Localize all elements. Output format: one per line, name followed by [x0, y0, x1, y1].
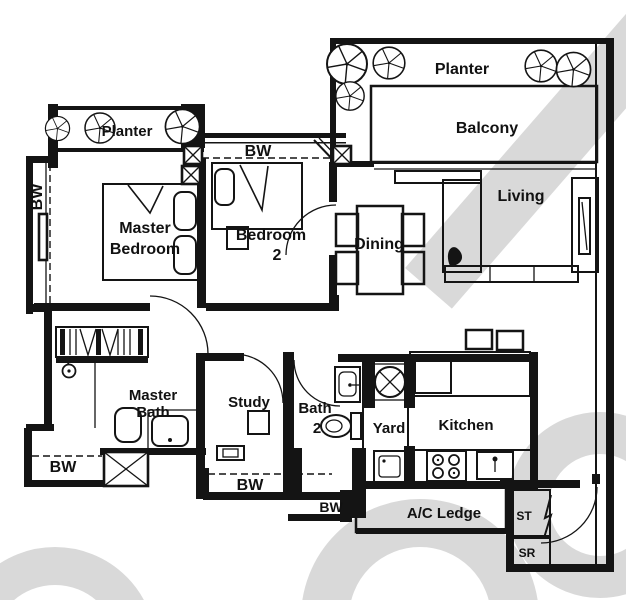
laundry-sink-icon — [374, 451, 405, 482]
label-master-bedroom-1: Master — [119, 220, 171, 237]
label-bw-study: BW — [237, 477, 265, 494]
tree-icon — [373, 47, 405, 79]
label-kitchen: Kitchen — [438, 417, 493, 434]
tree-icon — [525, 50, 557, 82]
tree-icon — [327, 44, 367, 84]
wall-cabinet-icon — [466, 330, 492, 349]
tree-icon — [336, 82, 364, 110]
closet-box-icon — [182, 166, 200, 184]
washing-machine-icon — [374, 364, 406, 400]
label-store: ST — [516, 509, 532, 523]
cabinet-icon — [217, 446, 244, 460]
tree-icon — [165, 109, 199, 143]
tree-icon — [45, 116, 69, 140]
label-planter-left: Planter — [102, 123, 153, 140]
column-box-icon — [184, 146, 202, 164]
label-ac-ledge: A/C Ledge — [407, 505, 481, 522]
tv-console-icon — [572, 178, 598, 272]
label-bw-top: BW — [245, 143, 273, 160]
tree-icon — [556, 52, 590, 86]
label-bedroom-2-1: Bedroom — [236, 227, 306, 244]
stove-icon — [427, 451, 466, 481]
label-bw-left: BW — [29, 183, 46, 211]
label-planter-top: Planter — [435, 61, 489, 78]
kitchen-sink-icon — [477, 452, 513, 479]
label-study: Study — [228, 394, 270, 411]
floor-plan: Planter Balcony Planter Master Bedroom B… — [0, 0, 626, 600]
wardrobe-icon — [56, 327, 148, 357]
label-balcony: Balcony — [456, 120, 518, 137]
ac-shaft-icon — [104, 452, 148, 486]
label-yard: Yard — [373, 420, 406, 437]
sink-icon — [335, 367, 360, 402]
label-bw-bottom-left: BW — [50, 459, 78, 476]
label-master-bedroom-2: Bedroom — [110, 241, 180, 258]
column-box-icon — [333, 146, 351, 164]
fridge-icon — [415, 361, 451, 393]
label-bw-bath-2: BW — [319, 499, 343, 515]
wall-cabinet-icon — [497, 331, 523, 350]
label-master-bath-1: Master — [129, 387, 178, 404]
label-bath-2-1: Bath — [298, 400, 331, 417]
master-bath-fixtures — [56, 296, 208, 450]
label-dining: Dining — [354, 236, 404, 253]
label-living: Living — [497, 188, 544, 205]
label-bedroom-2-2: 2 — [273, 247, 282, 264]
label-bath-2-2: 2 — [313, 420, 321, 437]
kitchen-fixtures — [408, 330, 532, 481]
desk-icon — [248, 411, 269, 434]
label-master-bath-2: Bath — [136, 404, 169, 421]
label-shelter: SR — [519, 546, 536, 560]
